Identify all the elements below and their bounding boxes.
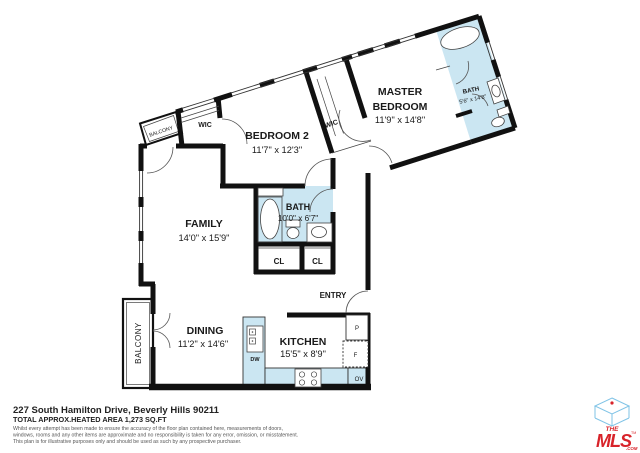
dining-french-door-bottom [153,331,170,348]
wic2-threshold [332,141,371,153]
dining-dims: 11'2" x 14'6" [178,339,228,349]
entry-door [346,291,368,313]
master-bedroom-door [369,146,392,163]
family-balcony-door [147,147,173,173]
dishwasher-label: DW [250,357,260,363]
footer: 227 South Hamilton Drive, Beverly Hills … [13,405,298,445]
disclaimer-line-2: windows, rooms and any other items are a… [13,433,298,439]
dining-label: DINING [187,325,224,337]
kitchen-dims: 15'5" x 8'9" [280,349,326,359]
dining-french-door-top [153,313,170,330]
sink-drain [252,340,254,342]
master-label-2: BEDROOM [373,101,428,113]
bath-dims: 10'0" x 6'7" [278,214,318,223]
kitchen-label: KITCHEN [280,336,327,348]
master-label-1: MASTER [378,86,423,98]
family-label: FAMILY [185,218,223,230]
area-line: TOTAL APPROX.HEATED AREA 1,273 SQ.FT [13,415,167,424]
wic-mid-label: WIC [324,119,339,130]
bedroom2-label: BEDROOM 2 [245,130,309,142]
hall-bath-shelf [258,188,283,196]
mls-logo: THE MLS .COM TM [595,398,638,451]
bedroom2-door [305,159,332,186]
closet-right-label: CL [312,257,323,266]
pantry-label: P [355,326,359,332]
disclaimer-line-3: This plan is for illustrative purposes o… [13,439,241,445]
logo-tm-text: TM [631,431,636,435]
entry-label: ENTRY [320,291,347,300]
balcony-left-label: BALCONY [134,322,143,364]
hall-toilet [287,228,299,239]
mls-cube-dot [610,401,613,404]
disclaimer-line-1: Whilst every attempt has been made to en… [13,426,283,432]
wic1-door [222,119,247,144]
oven-label: OV [355,377,364,383]
closet-left-label: CL [274,257,285,266]
master-dims: 11'9" x 14'8" [375,115,425,125]
hall-sink [312,227,327,238]
fridge-label: F [354,353,358,359]
bedroom2-dims: 11'7" x 12'3" [252,145,302,155]
wic-top-label: WIC [198,122,212,129]
bath-fill-areas [243,16,515,388]
stove [295,369,321,387]
floor-plan-page: FAMILY 14'0" x 15'9" DINING 11'2" x 14'6… [0,0,640,453]
hall-tub [261,199,280,239]
sink-drain [252,331,254,333]
bath-label: BATH [286,202,310,212]
family-dims: 14'0" x 15'9" [179,233,230,243]
logo-com-text: .COM [626,446,638,451]
floor-plan-svg: FAMILY 14'0" x 15'9" DINING 11'2" x 14'6… [0,0,640,453]
